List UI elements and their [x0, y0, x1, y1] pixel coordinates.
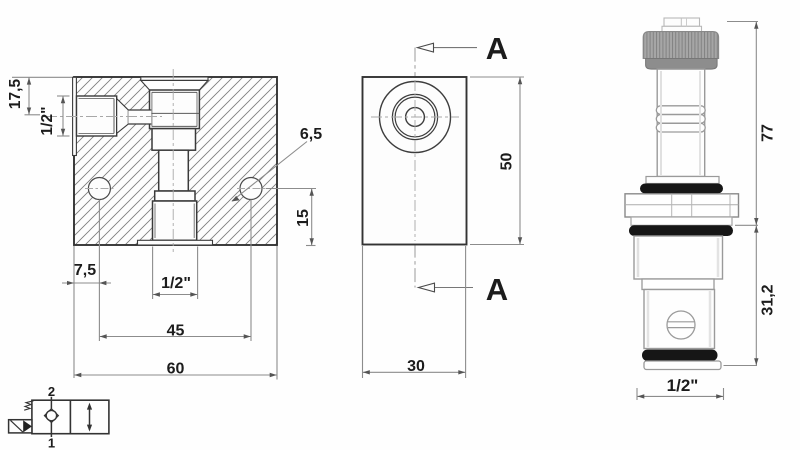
svg-text:60: 60: [167, 361, 185, 378]
svg-text:A: A: [486, 31, 508, 66]
svg-text:A: A: [486, 272, 508, 307]
svg-text:2: 2: [48, 384, 55, 399]
svg-text:31,2: 31,2: [760, 284, 777, 315]
svg-text:7,5: 7,5: [74, 262, 96, 279]
svg-text:30: 30: [407, 358, 425, 375]
svg-text:45: 45: [167, 323, 185, 340]
svg-text:77: 77: [760, 124, 777, 142]
svg-text:6,5: 6,5: [300, 126, 322, 143]
svg-text:15: 15: [295, 209, 312, 227]
svg-text:1/2": 1/2": [667, 376, 699, 395]
svg-text:50: 50: [499, 153, 516, 171]
svg-text:1: 1: [48, 436, 55, 450]
svg-text:17,5: 17,5: [7, 79, 24, 110]
svg-text:1/2": 1/2": [39, 107, 56, 136]
svg-text:1/2": 1/2": [161, 275, 191, 292]
